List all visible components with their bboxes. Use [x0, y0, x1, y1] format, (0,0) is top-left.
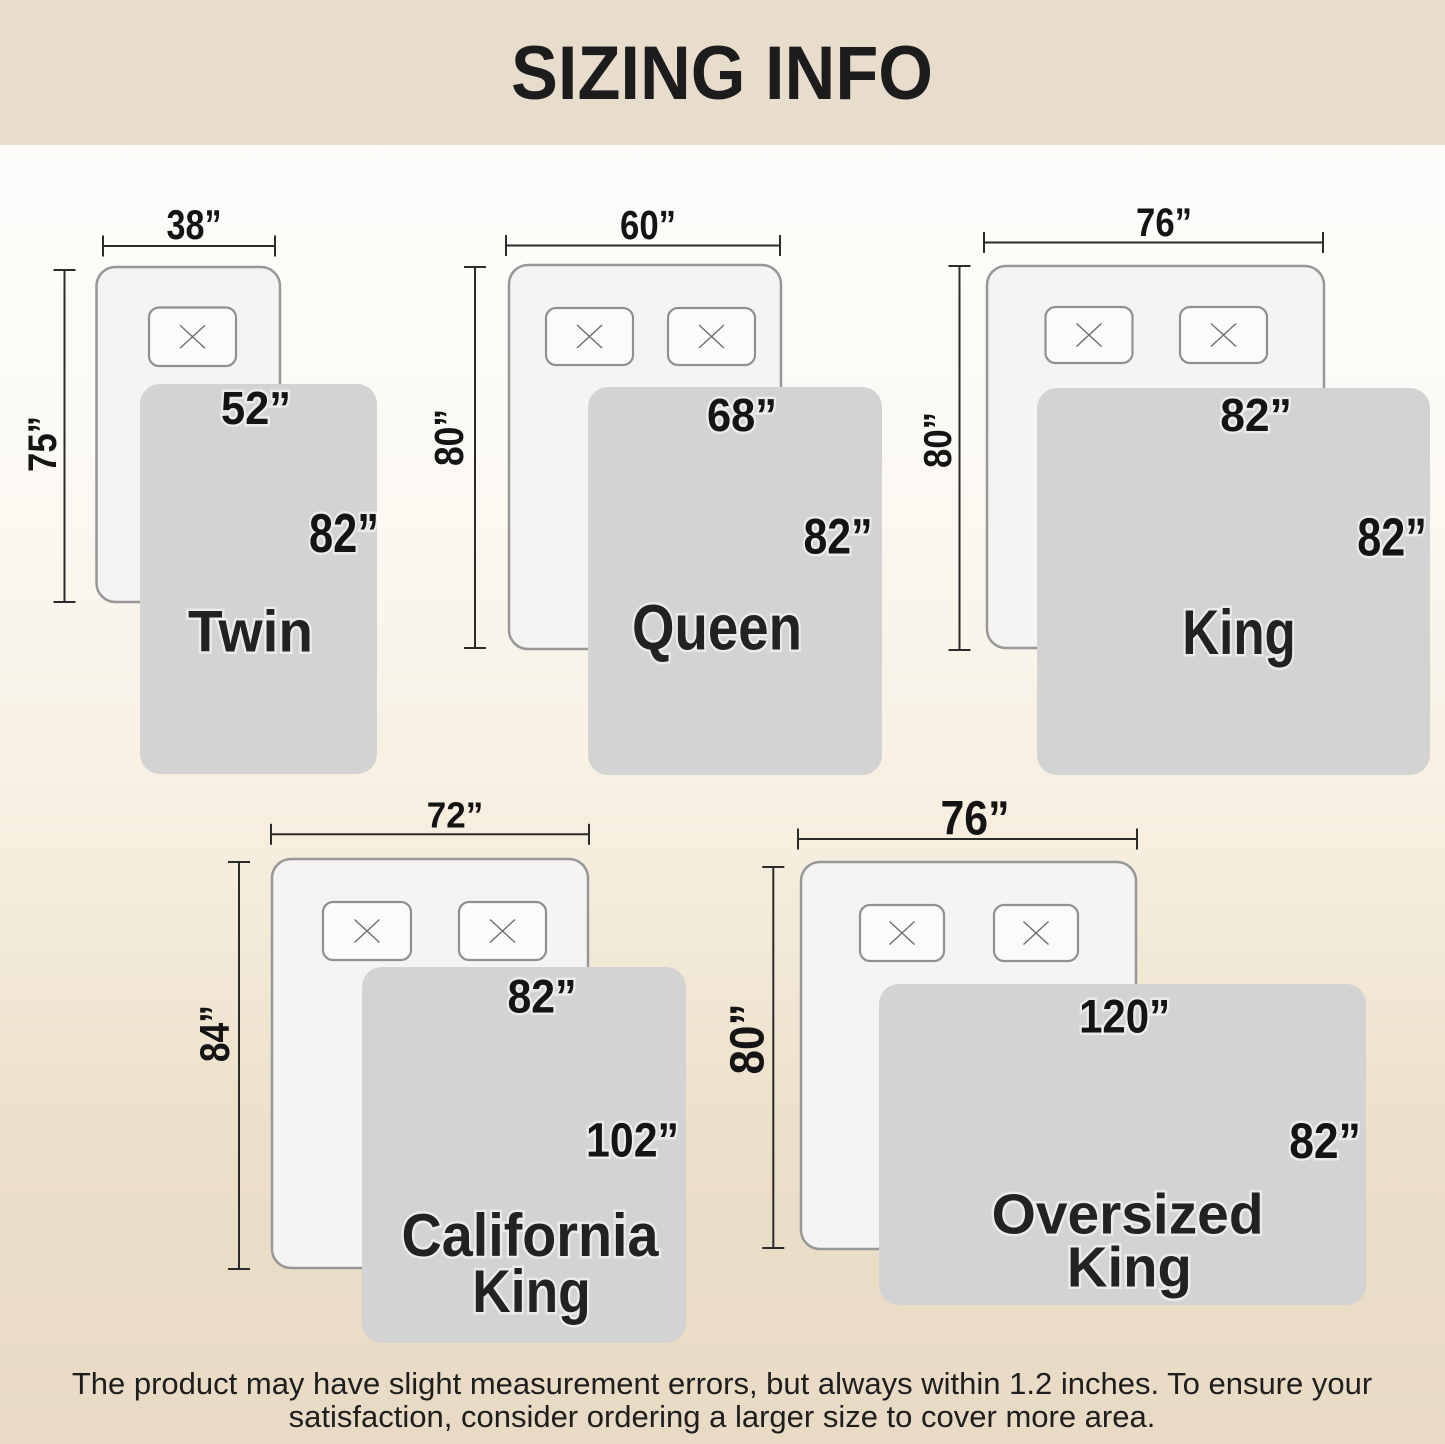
svg-text:82”: 82”: [309, 502, 379, 564]
svg-text:72”: 72”: [427, 795, 484, 836]
svg-text:102”: 102”: [586, 1114, 679, 1168]
svg-text:satisfaction, consider orderin: satisfaction, consider ordering a larger…: [289, 1399, 1156, 1434]
svg-text:82”: 82”: [508, 970, 577, 1023]
svg-text:68”: 68”: [707, 389, 777, 441]
svg-text:60”: 60”: [620, 202, 676, 248]
svg-text:The product may have slight me: The product may have slight measurement …: [72, 1366, 1372, 1401]
svg-text:84”: 84”: [191, 1005, 238, 1062]
svg-text:52”: 52”: [221, 382, 291, 434]
svg-text:76”: 76”: [941, 792, 1010, 845]
svg-text:82”: 82”: [1220, 389, 1292, 441]
svg-text:SIZING INFO: SIZING INFO: [511, 31, 933, 116]
svg-text:King: King: [1182, 598, 1296, 668]
svg-text:120”: 120”: [1079, 990, 1170, 1043]
svg-text:80”: 80”: [917, 412, 960, 468]
svg-text:Queen: Queen: [632, 592, 802, 664]
svg-text:38”: 38”: [167, 201, 222, 248]
svg-text:80”: 80”: [722, 1004, 775, 1075]
svg-text:Twin: Twin: [188, 600, 313, 665]
svg-text:76”: 76”: [1136, 201, 1192, 245]
svg-text:82”: 82”: [804, 509, 873, 565]
svg-text:King: King: [472, 1258, 591, 1325]
svg-text:King: King: [1067, 1236, 1192, 1300]
svg-text:82”: 82”: [1289, 1113, 1361, 1169]
svg-text:82”: 82”: [1357, 508, 1427, 568]
svg-text:75”: 75”: [21, 416, 65, 472]
svg-text:80”: 80”: [426, 409, 472, 466]
